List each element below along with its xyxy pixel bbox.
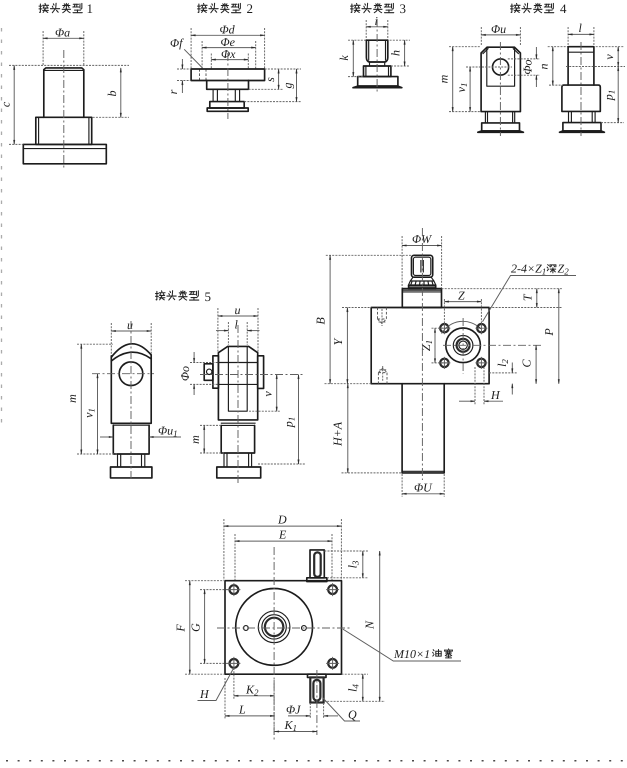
svg-text:n: n — [537, 64, 551, 70]
svg-text:Φf: Φf — [170, 36, 184, 50]
svg-text:ΦU: ΦU — [414, 481, 433, 495]
svg-text:u: u — [235, 303, 241, 317]
svg-text:m: m — [65, 394, 79, 403]
svg-text:E: E — [278, 528, 287, 542]
svg-text:4: 4 — [560, 1, 567, 16]
svg-text:Φu: Φu — [491, 22, 506, 36]
svg-text:2: 2 — [247, 1, 254, 16]
svg-text:r: r — [166, 89, 180, 94]
svg-text:G: G — [188, 623, 202, 632]
svg-text:v: v — [602, 54, 616, 60]
svg-text:c: c — [0, 101, 13, 107]
svg-text:5: 5 — [205, 289, 212, 304]
svg-text:H: H — [490, 388, 501, 402]
svg-text:D: D — [277, 513, 287, 527]
svg-text:B: B — [314, 317, 328, 325]
svg-text:F: F — [173, 624, 187, 633]
svg-text:Z: Z — [458, 289, 465, 303]
svg-text:1: 1 — [87, 1, 94, 16]
svg-text:Φo: Φo — [178, 366, 192, 381]
svg-text:P: P — [542, 328, 556, 337]
svg-text:ΦJ: ΦJ — [286, 703, 301, 717]
svg-text:b: b — [105, 91, 119, 97]
svg-text:H+A: H+A — [331, 421, 345, 447]
svg-text:m: m — [437, 74, 451, 83]
svg-text:2-4×Z1: 2-4×Z1 — [511, 262, 546, 277]
svg-text:L: L — [238, 703, 246, 717]
svg-text:M10×1: M10×1 — [393, 647, 430, 661]
svg-text:Φo: Φo — [521, 59, 535, 74]
svg-text:v: v — [261, 391, 275, 397]
svg-text:Φx: Φx — [221, 47, 236, 61]
svg-text:u: u — [127, 318, 133, 332]
svg-text:3: 3 — [400, 1, 407, 16]
svg-text:Q: Q — [348, 708, 357, 722]
svg-text:Φa: Φa — [55, 26, 70, 40]
svg-text:g: g — [281, 83, 295, 89]
svg-text:k: k — [337, 55, 351, 61]
svg-text:N: N — [363, 620, 377, 630]
svg-text:s: s — [263, 77, 277, 82]
svg-text:C: C — [520, 359, 534, 368]
svg-text:H: H — [199, 687, 210, 701]
svg-text:h: h — [389, 50, 403, 56]
svg-text:m: m — [188, 435, 202, 444]
